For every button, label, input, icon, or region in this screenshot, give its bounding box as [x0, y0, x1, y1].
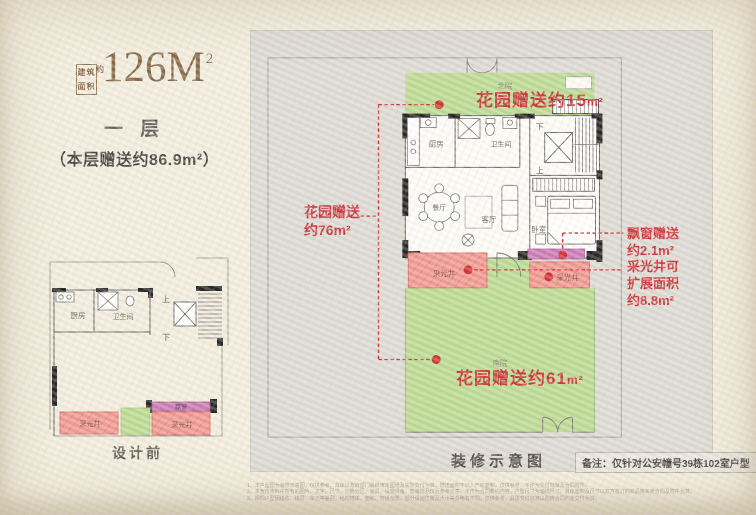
annotation-light-well: 采光井可 扩展面积 约8.8m²: [627, 259, 679, 310]
annotation-bay-window: 飘窗赠送 约2.1m²: [627, 226, 679, 260]
main-plan-panel: 北院 南院 厨房 卫生间 下 上 餐厅 客厅 卧室 采光井 采光井 花园赠送约1…: [250, 30, 713, 472]
annotation-well-line1: 采光井可: [627, 259, 679, 276]
building-area-box: 建筑 面积: [76, 64, 97, 95]
bathroom-label: 卫生间: [490, 139, 511, 148]
before-bay-label: 飘窗: [175, 403, 187, 411]
north-yard-planter: [566, 77, 592, 89]
before-walls: [52, 286, 223, 413]
before-light-well-right-label: 采光井: [172, 420, 193, 429]
before-down-label: 下: [162, 333, 170, 342]
annotation-bay-line1: 飘窗赠送: [627, 226, 679, 243]
before-kitchen-fixtures: [56, 292, 74, 302]
annotation-garden-south: 花园赠送约61m²: [456, 368, 584, 390]
main-plan-note: 备注：仅针对公安幢号39栋102室户型: [575, 452, 756, 473]
main-plan-caption: 装修示意图: [426, 450, 571, 471]
annotation-well-line2: 扩展面积: [627, 276, 679, 293]
annotation-garden-west-line1: 花园赠送: [304, 203, 360, 221]
before-elevator: [174, 302, 196, 326]
annotation-garden-north: 花园赠送约15m²: [476, 90, 604, 112]
before-plan-caption: 设计前: [95, 443, 180, 463]
annotation-well-line3: 约8.8m²: [627, 293, 679, 310]
north-gate-doors: [467, 58, 497, 73]
disclaimer-line-3: 3、相同户型因楼栋、楼层、单元等差别，结构墙体、面积、管道布置、部分设施位置及大…: [247, 496, 742, 502]
disclaimer-footnotes: 1、本户型图为装修示意图，仅供参考，具体以政府部门最终审定图纸及实际交付为准，赠…: [247, 483, 742, 502]
area-superscript: 2: [206, 51, 214, 67]
stairs-down-label: 下: [536, 123, 544, 132]
light-well-right-label: 采光井: [556, 272, 578, 282]
before-entry-door-arc: [160, 262, 175, 277]
floorplan-page: { "header": { "area_box": { "row1": "建筑"…: [0, 0, 756, 515]
living-label: 客厅: [482, 214, 497, 224]
dining-label: 餐厅: [432, 203, 446, 212]
before-kitchen-label: 厨房: [71, 310, 86, 320]
annotation-garden-west-line2: 约76m²: [304, 221, 360, 239]
elevator: [545, 133, 573, 163]
area-value: 126M2: [102, 46, 213, 89]
bedroom-label: 卧室: [531, 224, 546, 234]
light-well-left-label: 采光井: [433, 268, 455, 278]
annotation-garden-north-text: 花园赠送约15: [476, 91, 587, 110]
area-box-row2: 面积: [78, 82, 96, 91]
floor-label: 一 层: [104, 114, 165, 141]
before-stairs: [198, 294, 222, 338]
annotation-garden-south-text: 花园赠送约61: [456, 369, 567, 388]
annotation-bay-line2: 约2.1m²: [627, 243, 679, 260]
area-box-row1: 建筑: [78, 68, 96, 77]
annotation-garden-west: 花园赠送 约76m²: [304, 203, 360, 239]
before-garden-patch: [121, 408, 150, 435]
south-yard-label: 南院: [492, 357, 507, 367]
annotation-garden-south-unit: m²: [567, 373, 584, 387]
bay-window-strip: [528, 249, 585, 259]
before-design-plan: 厨房 卫生间 上 下 飘窗 采光井 采光井: [40, 252, 240, 442]
kitchen-label: 厨房: [429, 138, 444, 148]
area-number: 126M: [102, 44, 205, 91]
annotation-garden-north-unit: m²: [587, 95, 604, 109]
disclaimer-line-2: 2、本宣传资料中所有的图片、文字、尺寸、功能分区、家具、设施设备、软装饰品仅为参…: [247, 489, 742, 495]
floor-gift-label: （本层赠送约86.9m²）: [50, 146, 219, 170]
before-bathroom-label: 卫生间: [113, 312, 134, 321]
before-bath-fixtures: [98, 292, 134, 310]
before-up-label: 上: [162, 295, 170, 304]
before-light-well-left-label: 采光井: [80, 419, 101, 428]
stairs-up-label: 上: [536, 166, 544, 175]
